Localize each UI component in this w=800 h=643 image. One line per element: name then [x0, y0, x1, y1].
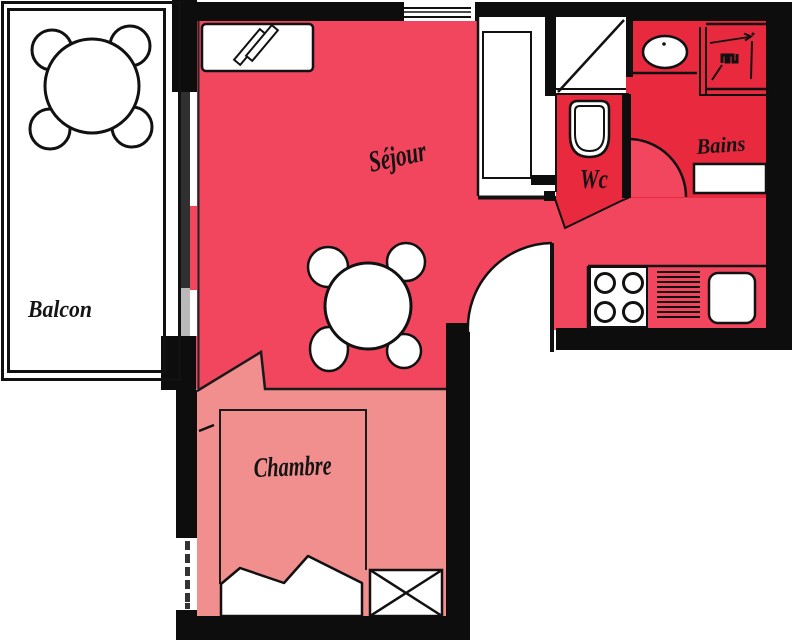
svg-text:Wc: Wc	[580, 164, 608, 194]
svg-text:Balcon: Balcon	[27, 297, 92, 323]
svg-text:Bains: Bains	[695, 131, 747, 159]
svg-text:Chambre: Chambre	[253, 450, 332, 484]
